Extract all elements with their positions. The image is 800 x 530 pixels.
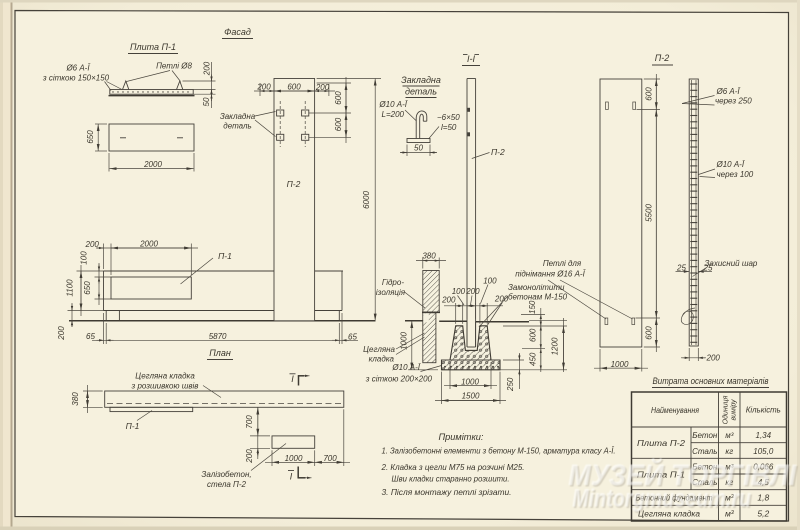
svg-text:Закладна: Закладна	[401, 75, 441, 85]
svg-text:Плита П-1: Плита П-1	[130, 42, 176, 52]
svg-text:Ø6 А-Ī: Ø6 А-Ī	[65, 64, 91, 73]
svg-text:ізоляція: ізоляція	[376, 288, 406, 297]
svg-text:П-2: П-2	[655, 53, 670, 63]
svg-text:200: 200	[315, 83, 330, 92]
svg-text:1000: 1000	[611, 360, 629, 369]
svg-text:Ø10 А-Ī: Ø10 А-Ī	[378, 100, 408, 109]
svg-text:1100: 1100	[66, 279, 75, 297]
svg-text:П-1: П-1	[126, 421, 140, 431]
svg-text:Петлі для: Петлі для	[543, 259, 582, 268]
svg-text:200: 200	[85, 240, 100, 249]
svg-text:1500: 1500	[462, 392, 480, 401]
svg-text:Витрата основних матеріалів: Витрата основних матеріалів	[653, 376, 769, 386]
svg-text:200: 200	[706, 354, 721, 363]
svg-text:бетонам М-150: бетонам М-150	[508, 293, 568, 302]
svg-text:2000: 2000	[143, 160, 162, 169]
svg-text:1000: 1000	[285, 454, 303, 463]
svg-text:Закладна: Закладна	[220, 112, 256, 121]
svg-text:50: 50	[414, 144, 423, 153]
svg-text:Сталь: Сталь	[692, 447, 717, 456]
svg-text:Захисний шар: Захисний шар	[705, 259, 758, 268]
svg-text:50: 50	[202, 97, 211, 106]
svg-text:200: 200	[256, 82, 271, 91]
svg-text:кладка: кладка	[369, 355, 395, 364]
svg-text:піднімання Ø16 А-Ī: піднімання Ø16 А-Ī	[515, 270, 586, 279]
svg-text:3. Після монтажу петлі зрізати: 3. Після монтажу петлі зрізати.	[382, 487, 512, 497]
svg-text:Mintorgmuseum.ru: Mintorgmuseum.ru	[572, 485, 751, 513]
svg-text:Ø10 А-Ī: Ø10 А-Ī	[716, 160, 746, 169]
svg-text:деталь: деталь	[405, 87, 437, 97]
svg-text:Цегляна кладка: Цегляна кладка	[135, 372, 195, 381]
svg-text:700: 700	[323, 454, 337, 463]
svg-text:Найменування: Найменування	[651, 406, 700, 415]
svg-text:Плита П-2: Плита П-2	[637, 439, 686, 448]
svg-text:деталь: деталь	[223, 122, 251, 131]
svg-text:5500: 5500	[645, 204, 654, 222]
svg-text:25: 25	[676, 264, 686, 273]
svg-text:План: План	[209, 348, 231, 358]
svg-text:через 250: через 250	[715, 97, 752, 106]
svg-text:Фасад: Фасад	[224, 27, 251, 37]
svg-text:150: 150	[528, 300, 537, 314]
svg-text:100: 100	[452, 287, 466, 296]
svg-text:Одиниця: Одиниця	[722, 395, 730, 424]
svg-text:l=50: l=50	[441, 123, 457, 132]
svg-text:1200: 1200	[550, 337, 559, 355]
svg-text:200: 200	[57, 326, 66, 341]
svg-text:1000: 1000	[461, 377, 479, 386]
svg-text:650: 650	[83, 281, 92, 295]
svg-text:Ø6 А-Ī: Ø6 А-Ī	[716, 87, 742, 96]
svg-text:600: 600	[645, 87, 654, 101]
svg-text:через 100: через 100	[717, 170, 754, 179]
svg-text:1000: 1000	[400, 332, 409, 350]
svg-text:450: 450	[528, 352, 537, 366]
svg-text:стела П-2: стела П-2	[207, 480, 246, 489]
svg-text:Примітки:: Примітки:	[439, 432, 484, 442]
svg-text:виміру: виміру	[730, 399, 738, 421]
svg-text:1,34: 1,34	[756, 431, 772, 440]
svg-text:380: 380	[71, 392, 80, 406]
svg-text:200: 200	[441, 296, 456, 305]
svg-text:600: 600	[334, 91, 343, 105]
svg-text:П-2: П-2	[491, 147, 505, 157]
svg-text:1. Залізобетонні елементи з бе: 1. Залізобетонні елементи з бетону М-150…	[382, 446, 616, 456]
svg-text:П-1: П-1	[218, 251, 232, 261]
svg-text:П-2: П-2	[287, 179, 301, 189]
svg-text:Ø10 А-Ī: Ø10 А-Ī	[391, 363, 421, 372]
svg-text:Шви кладки старанно розшити.: Шви кладки старанно розшити.	[392, 474, 510, 484]
svg-text:Петлі Ø8: Петлі Ø8	[156, 62, 192, 71]
svg-text:Цегляна: Цегляна	[363, 345, 395, 354]
svg-text:250: 250	[506, 377, 515, 392]
svg-text:з сіткою 200×200: з сіткою 200×200	[365, 375, 433, 384]
svg-text:2. Кладка з цегли М75 на розч: 2. Кладка з цегли М75 на розчині М25.	[381, 462, 525, 472]
svg-text:200: 200	[494, 294, 509, 303]
svg-text:5,2: 5,2	[757, 508, 769, 518]
svg-text:−6×50: −6×50	[437, 113, 460, 122]
svg-text:1,8: 1,8	[757, 493, 769, 503]
svg-text:Залізобетон,: Залізобетон,	[201, 470, 251, 479]
svg-text:380: 380	[422, 252, 436, 261]
svg-text:з сіткою 150×150: з сіткою 150×150	[42, 74, 110, 83]
svg-text:700: 700	[245, 415, 254, 429]
svg-text:600: 600	[528, 328, 537, 342]
svg-text:100: 100	[80, 251, 89, 265]
svg-text:2000: 2000	[139, 239, 158, 248]
svg-text:65: 65	[86, 332, 95, 341]
svg-text:6000: 6000	[362, 191, 371, 209]
svg-text:600: 600	[334, 117, 343, 131]
svg-text:І-І: І-І	[467, 54, 475, 64]
svg-text:65: 65	[348, 333, 357, 342]
svg-text:100: 100	[483, 276, 497, 285]
svg-text:650: 650	[86, 130, 95, 144]
svg-text:з розшивкою швів: з розшивкою швів	[131, 382, 199, 391]
svg-text:Кількість: Кількість	[746, 406, 781, 415]
svg-text:105,0: 105,0	[753, 447, 774, 456]
svg-text:600: 600	[287, 82, 301, 91]
svg-text:кг: кг	[725, 447, 733, 456]
svg-text:200: 200	[245, 449, 254, 464]
svg-text:600: 600	[645, 326, 654, 340]
svg-text:200: 200	[203, 61, 212, 76]
svg-text:L=200: L=200	[382, 110, 405, 119]
svg-text:Замонолітити: Замонолітити	[508, 283, 565, 292]
svg-text:Бетон: Бетон	[692, 431, 718, 440]
svg-text:25: 25	[703, 264, 713, 273]
svg-text:Гідро-: Гідро-	[382, 278, 404, 287]
svg-text:м³: м³	[725, 431, 733, 440]
svg-text:200: 200	[465, 287, 480, 296]
svg-text:5870: 5870	[209, 332, 227, 341]
